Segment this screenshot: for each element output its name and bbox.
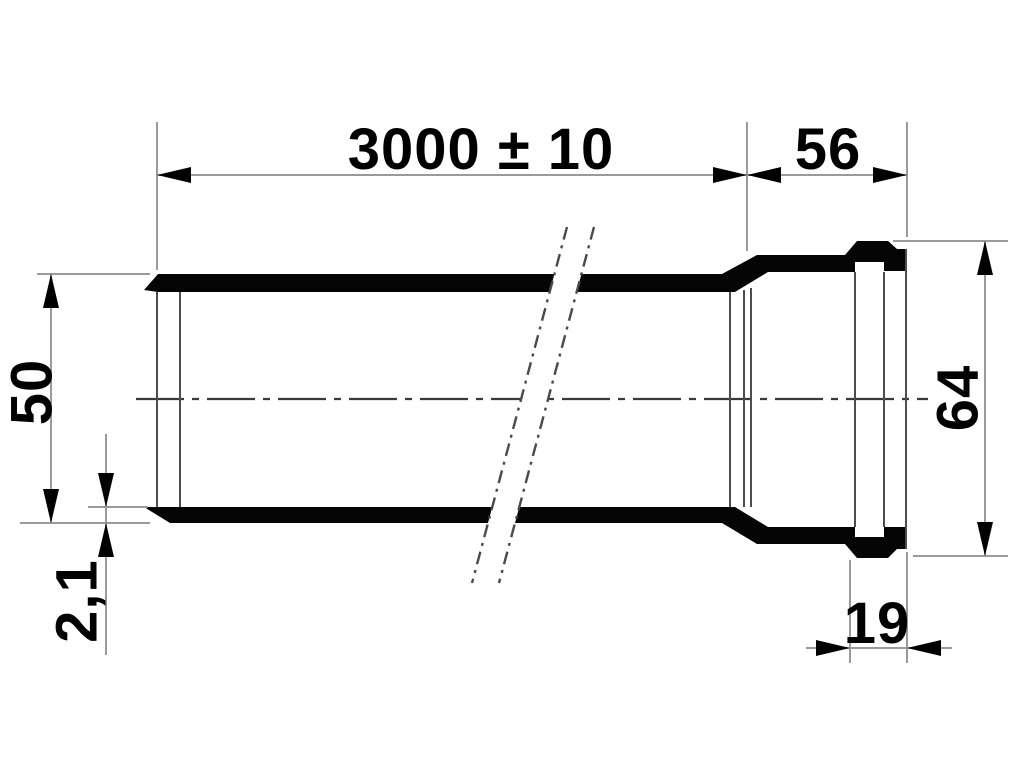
arrowhead-up-icon	[43, 274, 59, 308]
arrowhead-right-icon	[713, 167, 747, 183]
socket-mouth-to-bead-label: 19	[844, 591, 911, 656]
dimension-socket-outer-diameter: 64	[893, 241, 1008, 556]
arrowhead-up-icon	[98, 523, 114, 557]
pipe-outer-diameter-label: 50	[0, 359, 64, 426]
arrowhead-left-icon	[747, 167, 781, 183]
arrowhead-down-icon	[43, 489, 59, 523]
socket-length-label: 56	[795, 117, 862, 182]
dimension-socket-length: 56	[747, 117, 907, 183]
dimension-pipe-outer-diameter: 50	[0, 274, 150, 523]
pipe-technical-drawing-page: 3000 ± 10 56 50 2,1	[0, 0, 1024, 768]
dimension-wall-thickness: 2,1	[44, 434, 148, 655]
socket-outer-diameter-label: 64	[925, 365, 990, 432]
arrowhead-down-icon	[977, 522, 993, 556]
total-length-label: 3000 ± 10	[348, 117, 615, 182]
pipe-top-wall	[144, 241, 906, 292]
arrowhead-left-icon	[907, 640, 941, 656]
wall-thickness-label: 2,1	[44, 559, 109, 643]
arrowhead-right-icon	[873, 167, 907, 183]
arrowhead-down-icon	[98, 473, 114, 507]
pipe-bottom-wall	[144, 507, 906, 558]
dimension-socket-mouth-to-bead: 19	[806, 552, 952, 663]
pipe-technical-drawing: 3000 ± 10 56 50 2,1	[0, 0, 1024, 768]
arrowhead-left-icon	[157, 167, 191, 183]
arrowhead-up-icon	[977, 241, 993, 275]
